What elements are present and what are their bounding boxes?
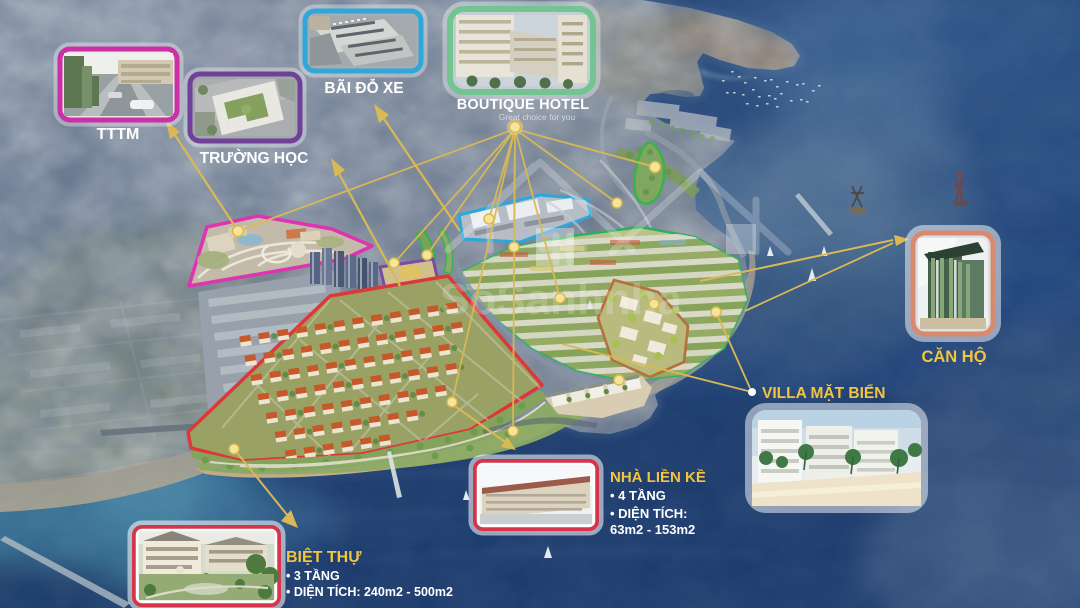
- svg-text:• 3 TẦNG: • 3 TẦNG: [286, 568, 340, 583]
- svg-text:• DIỆN TÍCH: 240m2 - 500m2: • DIỆN TÍCH: 240m2 - 500m2: [286, 584, 453, 599]
- svg-text:63m2 - 153m2: 63m2 - 153m2: [610, 522, 695, 537]
- svg-text:TRƯỜNG HỌC: TRƯỜNG HỌC: [200, 149, 309, 167]
- svg-text:• DIỆN TÍCH:: • DIỆN TÍCH:: [610, 506, 688, 521]
- svg-text:• 4 TẦNG: • 4 TẦNG: [610, 488, 666, 503]
- svg-text:BÃI ĐỖ XE: BÃI ĐỖ XE: [324, 79, 403, 97]
- svg-text:Great choice for you: Great choice for you: [499, 112, 576, 122]
- svg-text:CĂN HỘ: CĂN HỘ: [921, 347, 986, 366]
- svg-text:BIỆT THỰ: BIỆT THỰ: [286, 547, 362, 566]
- svg-text:NHÀ LIỀN KỀ: NHÀ LIỀN KỀ: [610, 469, 706, 486]
- svg-text:TTTM: TTTM: [97, 126, 140, 143]
- svg-text:BOUTIQUE HOTEL: BOUTIQUE HOTEL: [457, 97, 590, 113]
- svg-text:VILLA MẶT BIỂN: VILLA MẶT BIỂN: [762, 384, 885, 402]
